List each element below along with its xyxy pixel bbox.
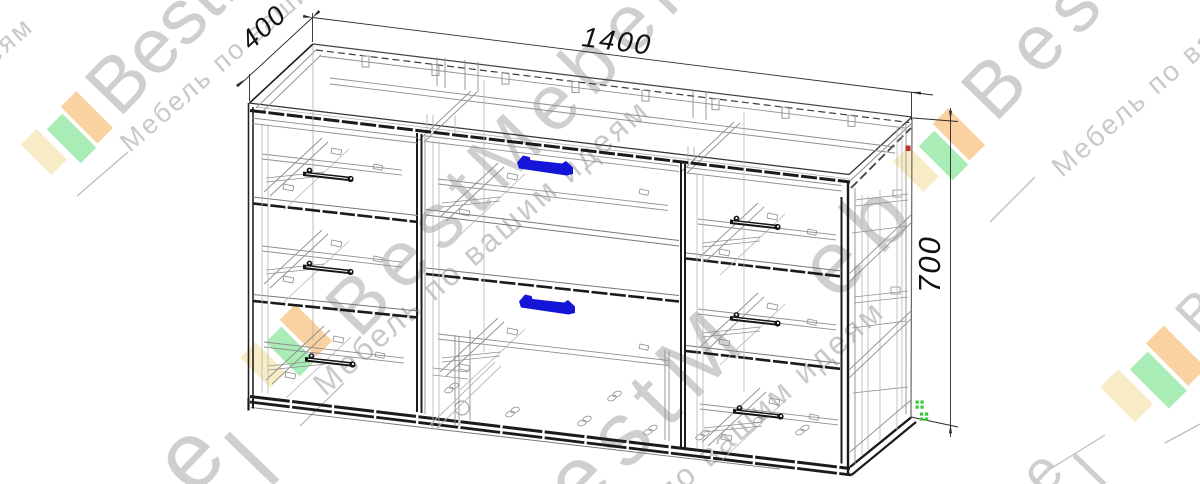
svg-text:700: 700: [912, 235, 947, 293]
svg-text:Be: Be: [1163, 232, 1200, 346]
